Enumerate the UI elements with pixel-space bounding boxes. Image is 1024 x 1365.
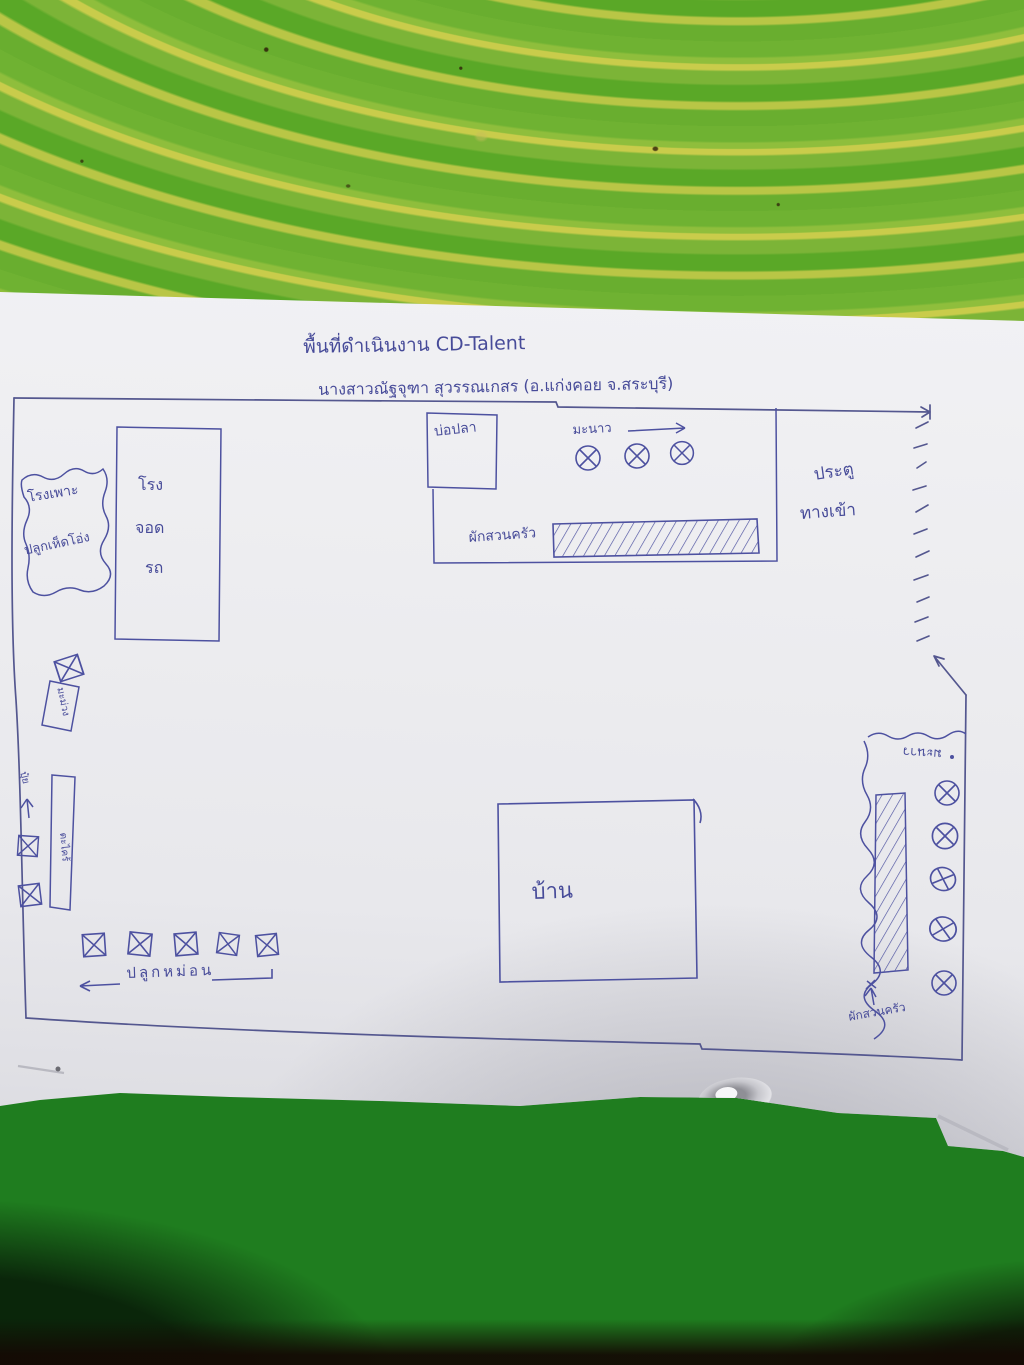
- garage-label-3: รถ: [145, 556, 163, 581]
- garage-label-2: จอด: [135, 516, 164, 541]
- mulberry-row-label: ปลูกหม่อน: [126, 958, 215, 985]
- labels-layer: พื้นที่ดำเนินงาน CD-Talent นางสาวณัฐจุฑา…: [0, 0, 1024, 1365]
- entrance-gate-label-2: ทางเข้า: [799, 496, 857, 527]
- lime-row-top-label: มะนาว: [572, 417, 612, 440]
- plan-title: พื้นที่ดำเนินงาน CD-Talent: [303, 328, 526, 362]
- mushroom-house-label-1: โรงเพาะ: [26, 479, 80, 509]
- compost-label: ปุ๋ย: [15, 770, 33, 785]
- plan-subtitle-owner: นางสาวณัฐจุฑา สุวรรณเกสร (อ.แก่งคอย จ.สร…: [318, 372, 674, 403]
- garage-label-1: โรง: [138, 473, 163, 498]
- mushroom-house-label-2: ปลูกเห็ดโอ่ง: [22, 526, 92, 560]
- lime-row-right-label: มะนาว: [902, 741, 942, 765]
- entrance-gate-label-1: ประตู: [812, 455, 855, 487]
- lemongrass-bed-label: ตะไคร้: [55, 832, 72, 862]
- tree-plot-small-label: มะม่วง: [52, 686, 73, 718]
- fish-pond-label: บ่อปลา: [433, 417, 478, 443]
- house-label: บ้าน: [531, 873, 574, 909]
- vegetable-bed-top-label: ผักสวนครัว: [468, 522, 537, 549]
- photo-of-hand-drawn-site-plan: { "document": { "type": "hand-drawn site…: [0, 0, 1024, 1365]
- vegetable-bed-right-label: ผักสวนครัว: [847, 998, 907, 1027]
